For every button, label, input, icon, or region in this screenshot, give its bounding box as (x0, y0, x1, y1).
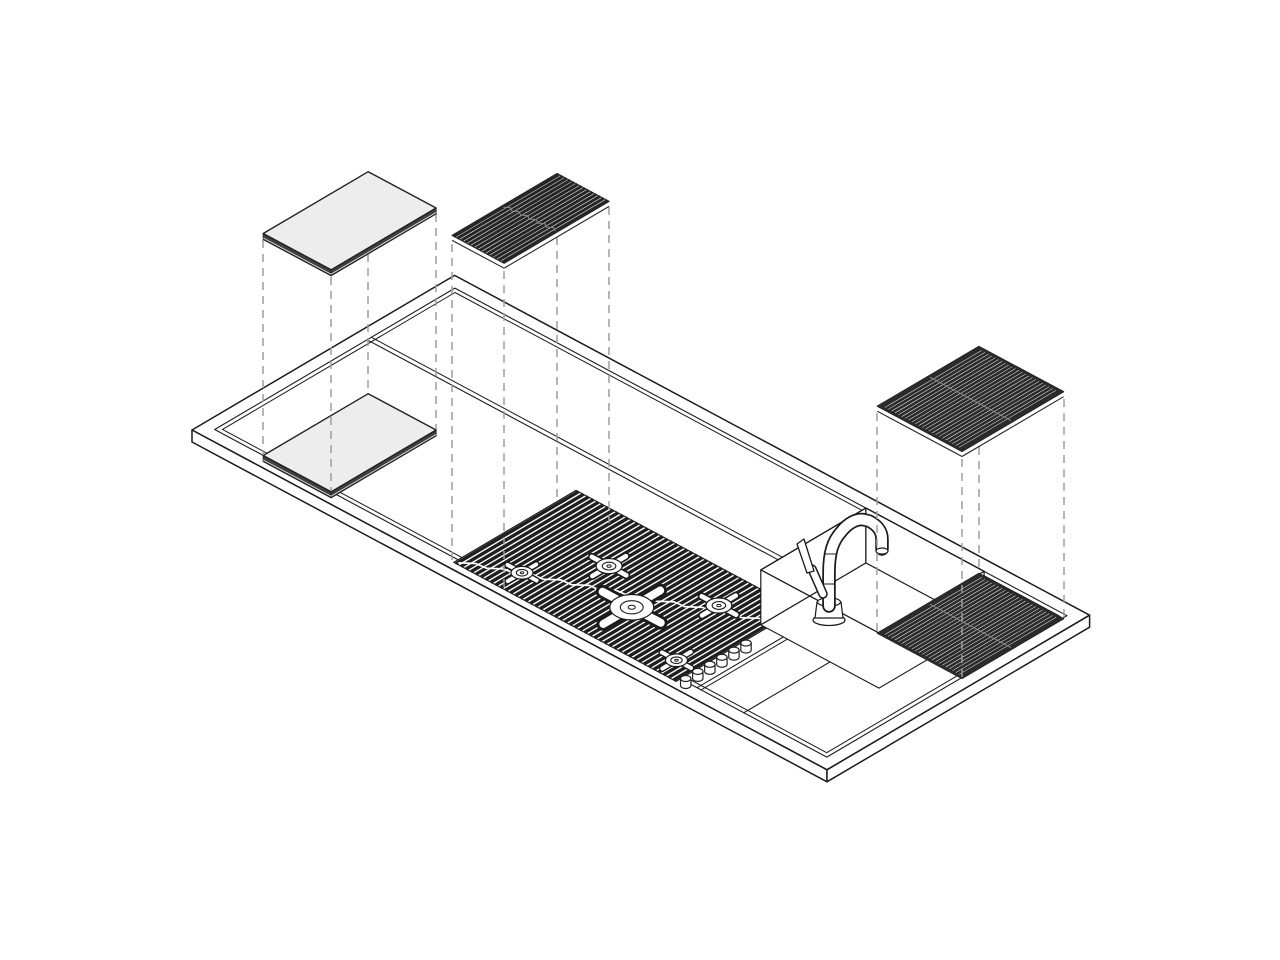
burner-ring-inner (602, 562, 616, 570)
burner-ring-inner (620, 601, 643, 614)
knob-top (741, 640, 751, 646)
knob-top (681, 676, 691, 682)
exploded-worktop-diagram (0, 0, 1280, 960)
worktop-technical-drawing (0, 0, 1280, 960)
knob-top (717, 654, 727, 660)
burner-ring-inner (671, 657, 682, 664)
knob-top (729, 647, 739, 653)
knob-top (693, 668, 703, 674)
burner-ring-inner (712, 602, 726, 610)
burner-ring-inner (516, 569, 527, 576)
faucet-spout-tip (876, 548, 888, 554)
floating-trivet-base (452, 174, 609, 264)
knob-top (705, 661, 715, 667)
floating-board-top (263, 172, 436, 270)
